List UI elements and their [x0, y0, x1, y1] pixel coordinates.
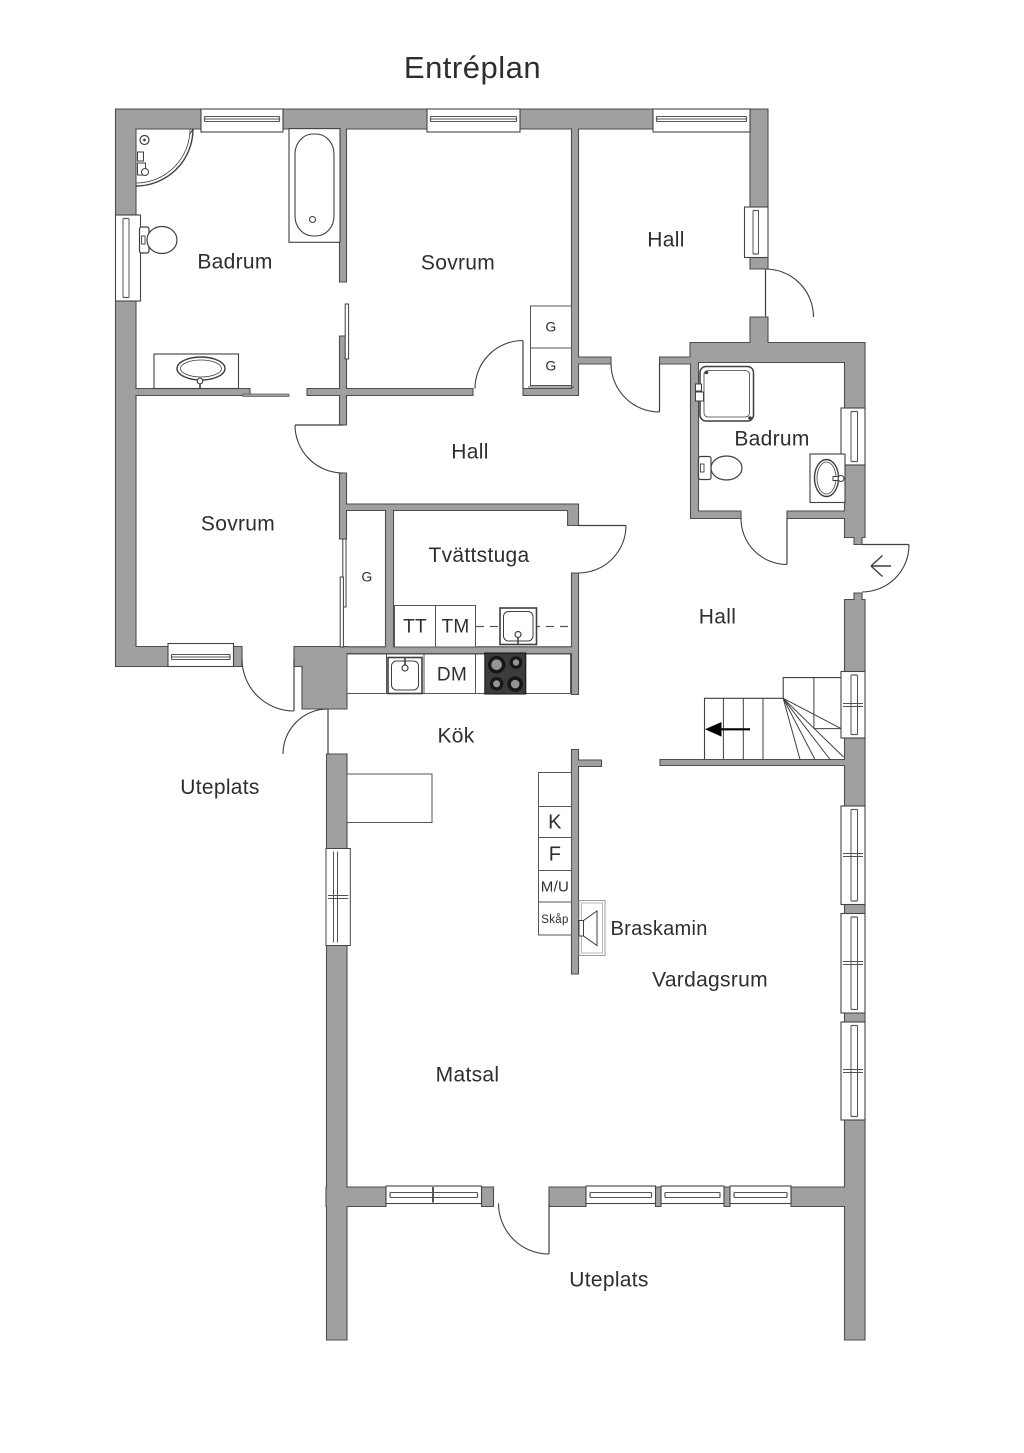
- svg-text:Sovrum: Sovrum: [201, 513, 275, 536]
- svg-text:K: K: [548, 811, 562, 833]
- svg-text:G: G: [545, 319, 556, 335]
- svg-text:G: G: [545, 358, 556, 374]
- svg-text:M/U: M/U: [541, 878, 569, 895]
- svg-text:F: F: [549, 843, 562, 865]
- svg-text:Uteplats: Uteplats: [180, 776, 259, 799]
- svg-text:Kök: Kök: [437, 725, 474, 748]
- svg-text:Vardagsrum: Vardagsrum: [652, 969, 768, 992]
- svg-text:DM: DM: [437, 665, 467, 686]
- svg-text:Uteplats: Uteplats: [569, 1269, 648, 1292]
- svg-text:Hall: Hall: [647, 229, 684, 252]
- svg-text:Badrum: Badrum: [734, 428, 809, 451]
- svg-text:Entréplan: Entréplan: [404, 50, 541, 85]
- svg-text:G: G: [361, 569, 372, 585]
- svg-text:TT: TT: [403, 617, 427, 638]
- svg-text:Matsal: Matsal: [436, 1064, 500, 1087]
- svg-text:Hall: Hall: [699, 606, 736, 629]
- svg-text:TM: TM: [441, 617, 469, 638]
- svg-text:Tvättstuga: Tvättstuga: [428, 544, 529, 567]
- svg-text:Skåp: Skåp: [541, 914, 568, 926]
- svg-text:Braskamin: Braskamin: [611, 918, 708, 940]
- svg-text:Badrum: Badrum: [197, 251, 272, 274]
- svg-text:Hall: Hall: [451, 441, 488, 464]
- svg-text:Sovrum: Sovrum: [421, 252, 495, 275]
